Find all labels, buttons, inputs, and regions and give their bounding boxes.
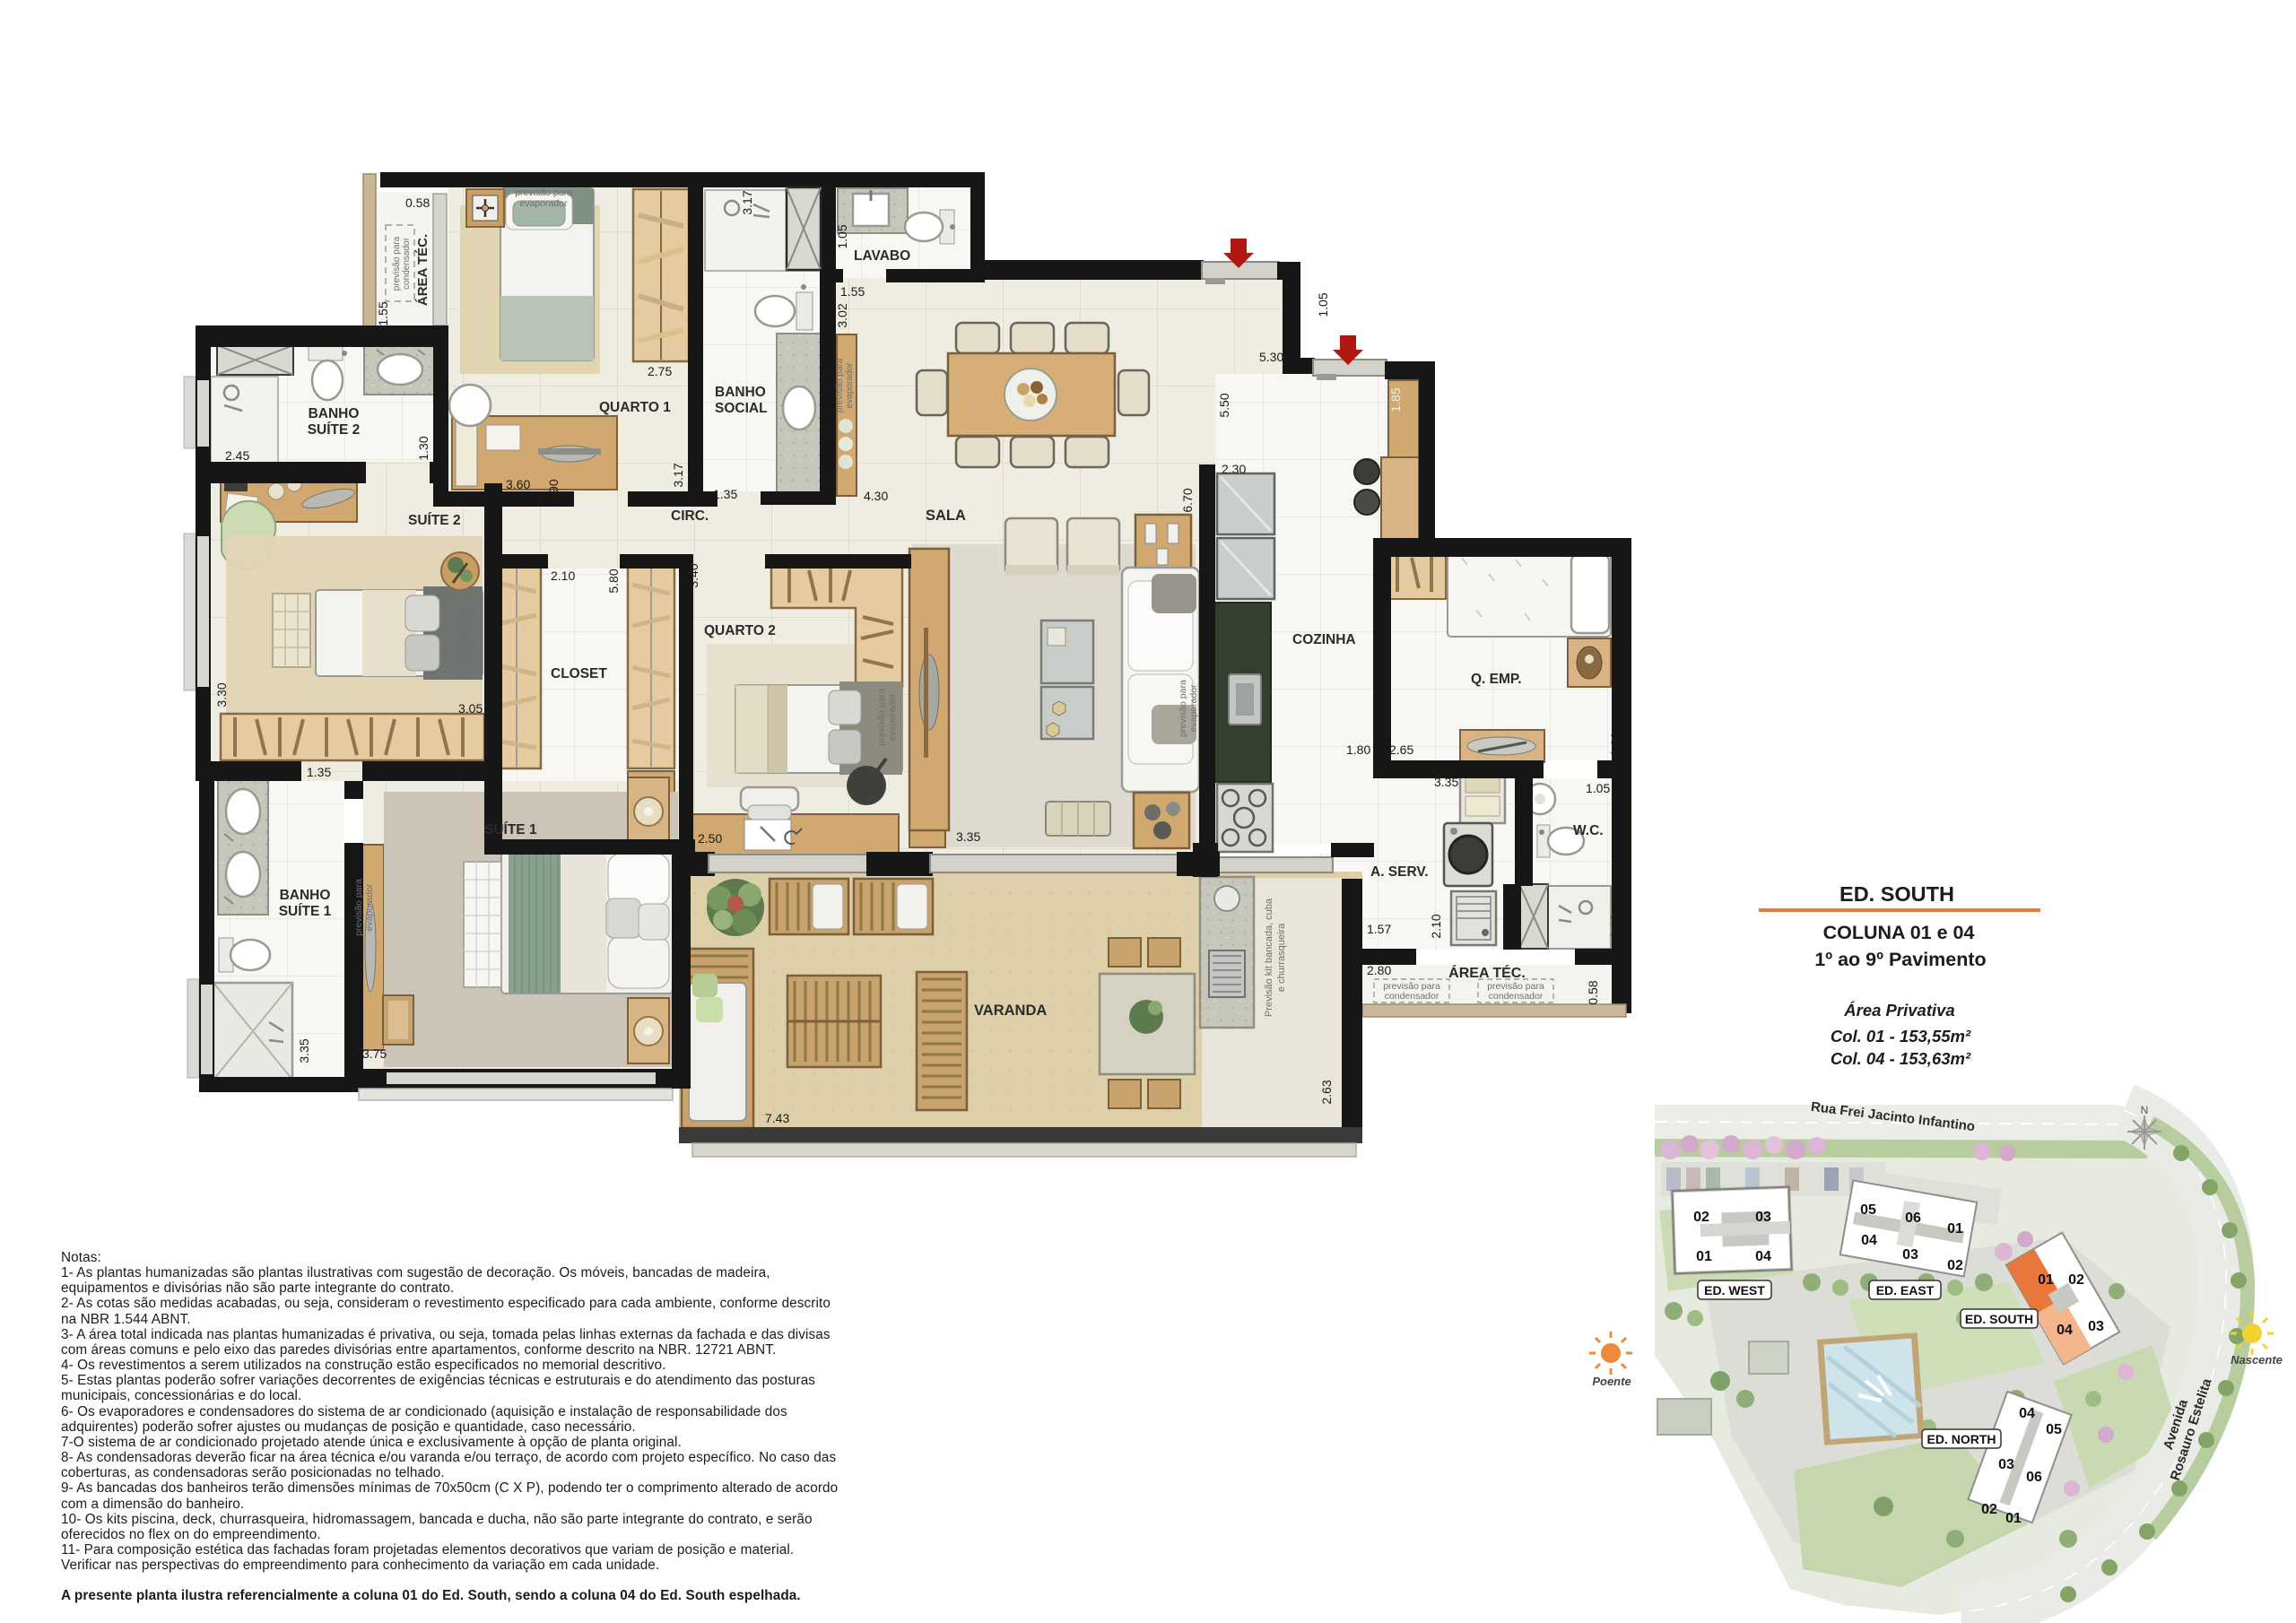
svg-text:Previsão kit bancada, cuba: Previsão kit bancada, cuba bbox=[1264, 898, 1274, 1017]
svg-text:VARANDA: VARANDA bbox=[974, 1002, 1047, 1019]
svg-text:3.30: 3.30 bbox=[214, 682, 229, 707]
svg-text:BANHO: BANHO bbox=[280, 888, 331, 903]
svg-text:2.30: 2.30 bbox=[1608, 732, 1622, 756]
svg-text:condensador: condensador bbox=[1385, 991, 1439, 1002]
svg-text:0.58: 0.58 bbox=[405, 195, 430, 210]
svg-text:01: 01 bbox=[2038, 1272, 2054, 1288]
svg-text:e churrasqueira: e churrasqueira bbox=[1276, 923, 1287, 992]
svg-text:SUÍTE 1: SUÍTE 1 bbox=[484, 822, 537, 838]
svg-text:03: 03 bbox=[2088, 1319, 2104, 1334]
svg-text:06: 06 bbox=[2026, 1470, 2042, 1485]
svg-text:SUÍTE 2: SUÍTE 2 bbox=[408, 513, 461, 528]
svg-text:3.35: 3.35 bbox=[297, 1038, 311, 1063]
svg-text:SALA: SALA bbox=[926, 508, 966, 524]
svg-text:QUARTO 1: QUARTO 1 bbox=[599, 400, 671, 415]
svg-text:Q. EMP.: Q. EMP. bbox=[1471, 672, 1522, 687]
svg-text:LAVABO: LAVABO bbox=[854, 248, 910, 264]
svg-text:02: 02 bbox=[2068, 1272, 2084, 1288]
svg-text:2.10: 2.10 bbox=[1608, 914, 1622, 938]
svg-text:5.50: 5.50 bbox=[1217, 393, 1231, 417]
svg-text:1.05: 1.05 bbox=[1316, 292, 1330, 317]
svg-text:2.10: 2.10 bbox=[551, 568, 575, 583]
svg-text:7.43: 7.43 bbox=[765, 1111, 789, 1125]
svg-text:previsão para: previsão para bbox=[457, 603, 468, 661]
svg-text:2.65: 2.65 bbox=[1389, 742, 1413, 757]
svg-text:N: N bbox=[2141, 1104, 2149, 1116]
svg-text:1º ao 9º Pavimento: 1º ao 9º Pavimento bbox=[1814, 949, 1986, 970]
svg-text:04: 04 bbox=[2057, 1323, 2073, 1338]
svg-text:2.80: 2.80 bbox=[1367, 963, 1391, 977]
svg-text:02: 02 bbox=[1981, 1502, 1997, 1517]
svg-text:3.40: 3.40 bbox=[686, 563, 700, 587]
svg-text:A. SERV.: A. SERV. bbox=[1370, 864, 1429, 880]
svg-text:0.58: 0.58 bbox=[1586, 980, 1600, 1004]
svg-text:05: 05 bbox=[2046, 1422, 2062, 1437]
svg-text:SUÍTE 1: SUÍTE 1 bbox=[279, 904, 332, 919]
svg-text:2.63: 2.63 bbox=[1319, 1080, 1334, 1104]
svg-text:1.85: 1.85 bbox=[1388, 387, 1403, 412]
svg-text:Col. 04 - 153,63m²: Col. 04 - 153,63m² bbox=[1831, 1049, 1971, 1068]
svg-text:COZINHA: COZINHA bbox=[1292, 632, 1356, 647]
svg-text:evaporador: evaporador bbox=[1188, 684, 1199, 733]
svg-text:2.45: 2.45 bbox=[225, 448, 249, 463]
svg-text:02: 02 bbox=[1947, 1258, 1963, 1273]
svg-text:1.80: 1.80 bbox=[1346, 742, 1370, 757]
svg-text:condensador: condensador bbox=[402, 237, 412, 289]
svg-text:previsão para: previsão para bbox=[515, 187, 572, 198]
svg-text:2.10: 2.10 bbox=[1429, 914, 1443, 938]
svg-text:2.75: 2.75 bbox=[648, 364, 672, 378]
svg-text:evaporador: evaporador bbox=[519, 198, 568, 209]
svg-text:1.55: 1.55 bbox=[376, 301, 390, 325]
svg-text:Col. 01 - 153,55m²: Col. 01 - 153,55m² bbox=[1831, 1027, 1971, 1046]
svg-text:4.30: 4.30 bbox=[864, 489, 888, 503]
svg-text:3.35: 3.35 bbox=[1434, 775, 1458, 789]
svg-text:1.35: 1.35 bbox=[713, 487, 737, 501]
svg-text:04: 04 bbox=[1755, 1249, 1771, 1264]
svg-text:01: 01 bbox=[1947, 1221, 1963, 1237]
svg-text:previsão para: previsão para bbox=[835, 358, 845, 412]
svg-text:ÁREA TÉC.: ÁREA TÉC. bbox=[1448, 964, 1526, 981]
svg-text:ED. WEST: ED. WEST bbox=[1704, 1283, 1765, 1298]
svg-text:SUÍTE 2: SUÍTE 2 bbox=[308, 422, 361, 438]
svg-text:01: 01 bbox=[1696, 1249, 1712, 1264]
svg-text:ED. SOUTH: ED. SOUTH bbox=[1965, 1312, 2033, 1326]
svg-text:QUARTO 2: QUARTO 2 bbox=[704, 623, 776, 638]
svg-text:5.30: 5.30 bbox=[1259, 350, 1283, 364]
svg-text:2.30: 2.30 bbox=[1222, 462, 1246, 476]
svg-text:Poente: Poente bbox=[1592, 1375, 1631, 1388]
svg-text:previsão para: previsão para bbox=[353, 879, 364, 936]
svg-text:3.17: 3.17 bbox=[740, 190, 754, 214]
svg-text:evaporador: evaporador bbox=[887, 693, 898, 742]
svg-text:BANHO: BANHO bbox=[309, 406, 360, 421]
svg-text:06: 06 bbox=[1905, 1211, 1921, 1226]
svg-text:previsão para: previsão para bbox=[1178, 680, 1188, 737]
svg-text:1.55: 1.55 bbox=[840, 284, 865, 299]
svg-text:W.C.: W.C. bbox=[1573, 823, 1604, 838]
svg-text:02: 02 bbox=[1693, 1210, 1709, 1225]
svg-text:condensador: condensador bbox=[1489, 991, 1544, 1002]
svg-text:04: 04 bbox=[1861, 1233, 1877, 1248]
svg-text:3.35: 3.35 bbox=[956, 829, 980, 844]
svg-text:Nascente: Nascente bbox=[2231, 1353, 2283, 1367]
svg-text:CIRC.: CIRC. bbox=[671, 508, 709, 524]
svg-text:03: 03 bbox=[1998, 1457, 2014, 1472]
svg-text:03: 03 bbox=[1902, 1247, 1918, 1263]
svg-text:previsão para: previsão para bbox=[876, 689, 887, 746]
svg-text:COLUNA 01 e 04: COLUNA 01 e 04 bbox=[1823, 922, 1975, 943]
svg-text:1.05: 1.05 bbox=[835, 224, 849, 248]
svg-text:05: 05 bbox=[1860, 1202, 1876, 1218]
svg-text:ED. EAST: ED. EAST bbox=[1876, 1283, 1935, 1298]
svg-text:BANHO: BANHO bbox=[715, 385, 766, 400]
svg-text:3.75: 3.75 bbox=[362, 1046, 387, 1061]
svg-text:04: 04 bbox=[2019, 1406, 2035, 1421]
svg-text:evaporador: evaporador bbox=[468, 608, 479, 656]
svg-text:3.05: 3.05 bbox=[458, 701, 483, 716]
svg-text:2.50: 2.50 bbox=[698, 831, 722, 846]
svg-text:ÁREA TÉC.: ÁREA TÉC. bbox=[415, 234, 430, 306]
svg-text:03: 03 bbox=[1755, 1210, 1771, 1225]
svg-text:6.70: 6.70 bbox=[1180, 488, 1195, 512]
svg-text:evaporador: evaporador bbox=[364, 883, 375, 932]
svg-text:5.80: 5.80 bbox=[606, 568, 621, 593]
svg-text:ED. SOUTH: ED. SOUTH bbox=[1839, 882, 1954, 906]
svg-text:1.57: 1.57 bbox=[1367, 922, 1391, 936]
svg-text:01: 01 bbox=[2005, 1511, 2022, 1526]
svg-text:evaporador: evaporador bbox=[845, 362, 855, 408]
svg-text:Área Privativa: Área Privativa bbox=[1843, 1001, 1954, 1020]
svg-text:SOCIAL: SOCIAL bbox=[715, 401, 768, 416]
svg-text:ED. NORTH: ED. NORTH bbox=[1927, 1432, 1996, 1446]
svg-text:previsão para: previsão para bbox=[392, 236, 402, 291]
svg-text:3.60: 3.60 bbox=[506, 477, 530, 491]
svg-text:3.02: 3.02 bbox=[835, 303, 849, 327]
svg-text:CLOSET: CLOSET bbox=[551, 666, 607, 681]
svg-text:1.30: 1.30 bbox=[416, 436, 430, 460]
svg-text:1.35: 1.35 bbox=[307, 765, 331, 779]
svg-text:0.90: 0.90 bbox=[546, 479, 561, 503]
svg-text:1.05: 1.05 bbox=[1586, 781, 1610, 795]
svg-text:3.17: 3.17 bbox=[671, 463, 685, 487]
